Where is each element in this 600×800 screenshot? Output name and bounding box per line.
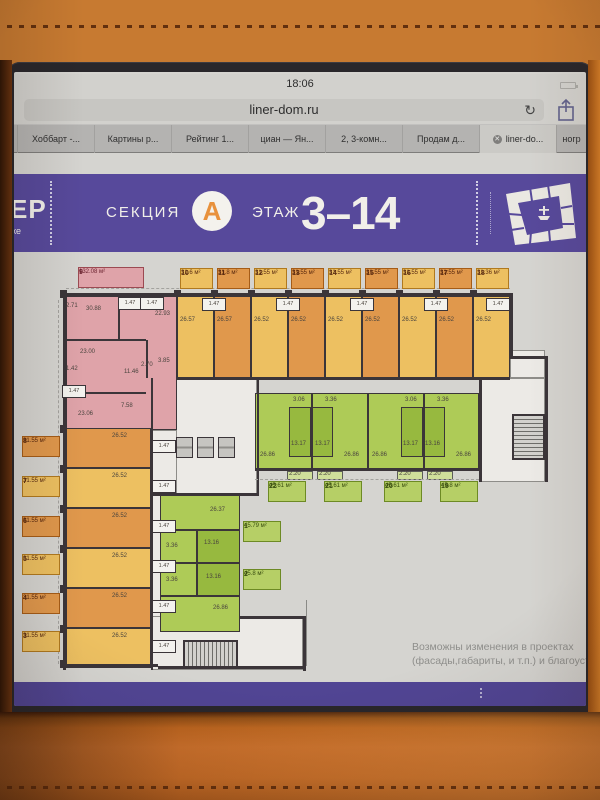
wall (545, 356, 548, 482)
facade-stud (60, 660, 66, 668)
room-area-value: 2.20 (319, 471, 331, 477)
room-area-value: 3.06 (405, 397, 417, 403)
disclaimer: Возможны изменения в проектах (фасады,га… (412, 640, 586, 668)
floor-plan: 1.471.471.471.471.471.471.471.471.471.47… (14, 72, 586, 706)
green-room (197, 530, 240, 563)
unit-label-15: 1531.55 м² (365, 268, 398, 289)
facade-stud (60, 465, 66, 473)
unit-6-fill (66, 508, 151, 548)
room-area-value: 26.52 (328, 317, 343, 323)
facade-stud (60, 290, 67, 298)
wall (196, 529, 198, 595)
facade-stud (433, 290, 440, 297)
unit-4-fill (66, 588, 151, 628)
room-area-value: 23.00 (80, 349, 95, 355)
unit-label-6: 631.55 м² (22, 516, 60, 537)
facade-stud (60, 425, 66, 433)
facade-stud (60, 585, 66, 593)
leather-case-left (0, 60, 12, 720)
green-room (289, 407, 311, 457)
unit-label-4: 431.55 м² (22, 593, 60, 614)
elevator-shaft (218, 437, 235, 458)
disclaimer-line1: Возможны изменения в проектах (412, 640, 586, 654)
dimension-line (255, 479, 479, 480)
room-area-value: 30.88 (86, 306, 101, 312)
room-area-value: 3.36 (325, 397, 337, 403)
room-area-value: 1.47 (62, 385, 86, 398)
room-area-value: 26.52 (439, 317, 454, 323)
wall (63, 293, 66, 670)
facade-stud (60, 545, 66, 553)
room-area-value: 3.36 (437, 397, 449, 403)
unit-label-10: 1031.6 м² (180, 268, 213, 289)
unit-label-13: 1331.55 м² (291, 268, 324, 289)
unit-3-fill (66, 628, 151, 668)
facade-stud (322, 290, 329, 297)
tablet-screen: 18:06 liner-dom.ru ↻ Хоббарт -... Картин… (14, 72, 586, 706)
wall (479, 378, 482, 482)
room-area-value: 26.86 (344, 452, 359, 458)
stairs (183, 640, 238, 668)
room-area-value: 1.47 (140, 297, 164, 310)
wall (66, 339, 146, 341)
room-area-value: 26.52 (291, 317, 306, 323)
unit-label-19: 1945.8 м² (440, 481, 478, 502)
room-area-value: 1.47 (152, 480, 176, 493)
room-area-value: 26.52 (365, 317, 380, 323)
unit-label-7: 731.55 м² (22, 476, 60, 497)
unit-8-fill (66, 428, 151, 468)
room-area-value: 26.52 (254, 317, 269, 323)
facade-stud (60, 625, 66, 633)
leather-case-bottom (0, 712, 600, 800)
unit-label-20: 2045.61 м² (384, 481, 422, 502)
green-room (423, 407, 445, 457)
room-area-value: 1.47 (118, 297, 142, 310)
room-area-value: 3.36 (166, 543, 178, 549)
facade-stud (211, 290, 218, 297)
disclaimer-line2: (фасады,габариты, и т.п.) и благоуст (412, 654, 586, 668)
room-area-value: 26.57 (180, 317, 195, 323)
room-area-value: 1.47 (350, 298, 374, 311)
room-area-value: 1.47 (152, 440, 176, 453)
room-area-value: 2.20 (399, 471, 411, 477)
unit-label-17: 1731.55 м² (439, 268, 472, 289)
room-area-value: 26.52 (476, 317, 491, 323)
room-area-value: 1.47 (486, 298, 510, 311)
leather-case-top (0, 0, 600, 70)
room-area-value: 26.52 (112, 473, 127, 479)
room-area-value: 11.46 (124, 369, 139, 375)
unit-label-16: 1631.55 м² (402, 268, 435, 289)
room-area-value: 1.47 (152, 640, 176, 653)
room-area-value: 13.17 (403, 441, 418, 447)
room-area-value: 1.47 (276, 298, 300, 311)
unit-label-5: 531.55 м² (22, 554, 60, 575)
dimension-line (306, 600, 307, 666)
room-area-value: 26.57 (217, 317, 232, 323)
green-room (401, 407, 423, 457)
photo-of-tablet: 18:06 liner-dom.ru ↻ Хоббарт -... Картин… (0, 0, 600, 800)
room-area-value: 26.86 (372, 452, 387, 458)
elevator-shaft (176, 437, 193, 458)
room-area-value: 26.86 (456, 452, 471, 458)
wall (510, 356, 548, 359)
corridor (510, 350, 545, 378)
room-area-value: 1.42 (66, 366, 78, 372)
unit-label-14: 1431.55 м² (328, 268, 361, 289)
page-footer (14, 682, 586, 706)
unit-label-11: 1131.8 м² (217, 268, 250, 289)
footer-dots-icon (480, 688, 482, 690)
unit-label-21: 2145.61 м² (324, 481, 362, 502)
stairs (512, 414, 545, 460)
room-area-value: 26.52 (402, 317, 417, 323)
wall (367, 393, 369, 470)
room-area-value: 23.06 (78, 411, 93, 417)
unit-label-1: 145.79 м² (243, 521, 281, 542)
room-area-value: 2.20 (429, 471, 441, 477)
room-area-value: 3.85 (158, 358, 170, 364)
unit-label-8: 831.55 м² (22, 436, 60, 457)
facade-stud (248, 290, 255, 297)
room-area-value: 26.52 (112, 633, 127, 639)
room-area-value: 26.86 (213, 605, 228, 611)
stitching (0, 25, 600, 28)
unit-label-18: 1831.36 м² (476, 268, 509, 289)
facade-stud (396, 290, 403, 297)
facade-stud (174, 290, 181, 297)
room-area-value: 26.52 (112, 513, 127, 519)
unit-label-3: 331.55 м² (22, 631, 60, 652)
unit-5-fill (66, 548, 151, 588)
room-area-value: 13.17 (315, 441, 330, 447)
room-area-value: 7.58 (121, 403, 133, 409)
wall (311, 393, 313, 470)
room-area-value: 26.52 (112, 433, 127, 439)
unit-label-12: 1231.55 м² (254, 268, 287, 289)
room-area-value: 1.47 (424, 298, 448, 311)
room-area-value: 26.52 (112, 553, 127, 559)
wall (177, 377, 510, 380)
unit-7-fill (66, 468, 151, 508)
facade-stud (470, 290, 477, 297)
room-area-value: 2.70 (141, 362, 153, 368)
room-area-value: 1.47 (152, 560, 176, 573)
stitching (0, 786, 600, 789)
wall (240, 616, 303, 619)
unit-label-22: 2245.61 м² (268, 481, 306, 502)
wall (160, 595, 240, 597)
wall (423, 393, 425, 470)
room-area-value: 1.47 (202, 298, 226, 311)
leather-case-right (588, 60, 600, 720)
room-area-value: 2.71 (66, 303, 78, 309)
green-room (311, 407, 333, 457)
facade-stud (285, 290, 292, 297)
room-area-value: 13.17 (291, 441, 306, 447)
room-area-value: 13.16 (204, 540, 219, 546)
facade-stud (359, 290, 366, 297)
room-area-value: 26.86 (260, 452, 275, 458)
unit-label-2: 245.8 м² (243, 569, 281, 590)
room-area-value: 3.36 (166, 577, 178, 583)
unit-label-9: 9132.08 м² (78, 267, 144, 288)
room-area-value: 13.16 (206, 574, 221, 580)
room-area-value: 3.06 (293, 397, 305, 403)
room-area-value: 22.93 (155, 311, 170, 317)
room-area-value: 1.47 (152, 600, 176, 613)
room-area-value: 2.20 (289, 471, 301, 477)
room-area-value: 26.52 (112, 593, 127, 599)
wall (63, 664, 158, 667)
room-area-value: 1.47 (152, 520, 176, 533)
wall (257, 378, 259, 495)
facade-stud (60, 505, 66, 513)
wall (510, 296, 513, 358)
room-area-value: 26.37 (210, 507, 225, 513)
room-area-value: 13.16 (425, 441, 440, 447)
wall (146, 340, 148, 378)
elevator-shaft (197, 437, 214, 458)
wall (151, 493, 259, 496)
